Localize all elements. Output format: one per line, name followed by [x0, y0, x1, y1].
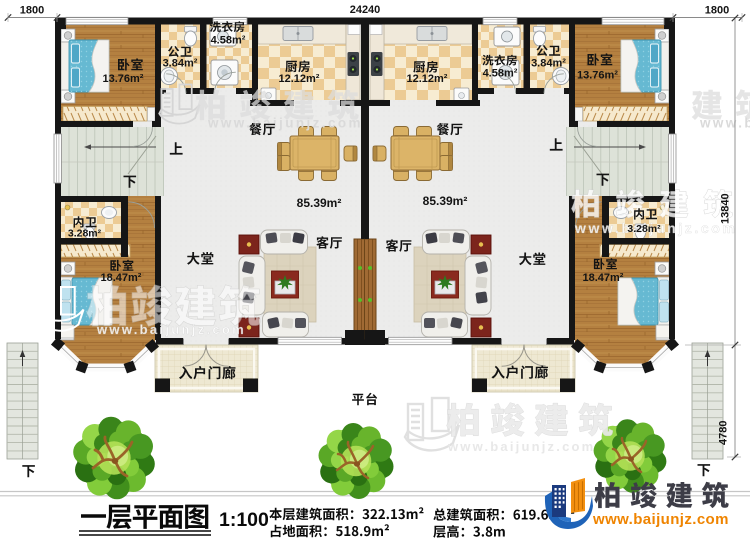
svg-text:3.84m²: 3.84m² [163, 58, 198, 70]
svg-text:4780: 4780 [718, 421, 730, 445]
svg-text:4.58m²: 4.58m² [211, 35, 246, 47]
svg-text:85.39m²: 85.39m² [297, 196, 342, 210]
svg-text:24240: 24240 [350, 4, 381, 16]
svg-text:18.47m²: 18.47m² [101, 272, 142, 284]
svg-text:1800: 1800 [705, 5, 729, 17]
svg-text:www.baijunjz.com: www.baijunjz.com [207, 116, 363, 131]
svg-text:1800: 1800 [20, 5, 44, 17]
svg-text:18.47m²: 18.47m² [583, 272, 624, 284]
svg-text:3.84m²: 3.84m² [531, 58, 566, 70]
svg-text:13.76m²: 13.76m² [103, 73, 144, 85]
svg-text:3.28m²: 3.28m² [627, 223, 661, 235]
svg-text:85.39m²: 85.39m² [423, 194, 468, 208]
svg-text:13.76m²: 13.76m² [577, 70, 618, 82]
svg-text:www.baijunjz.com: www.baijunjz.com [447, 439, 595, 454]
svg-text:www.baijunjz.com: www.baijunjz.com [96, 322, 246, 337]
svg-text:1:100: 1:100 [219, 509, 269, 531]
svg-text:3.28m²: 3.28m² [68, 228, 102, 240]
svg-text:4.58m²: 4.58m² [483, 68, 518, 80]
svg-text:12.12m²: 12.12m² [279, 73, 320, 85]
svg-text:13840: 13840 [720, 193, 732, 224]
svg-text:www.baijunjz.com: www.baijunjz.com [592, 511, 729, 528]
svg-text:12.12m²: 12.12m² [407, 73, 448, 85]
svg-text:www.baiju: www.baiju [699, 116, 750, 131]
